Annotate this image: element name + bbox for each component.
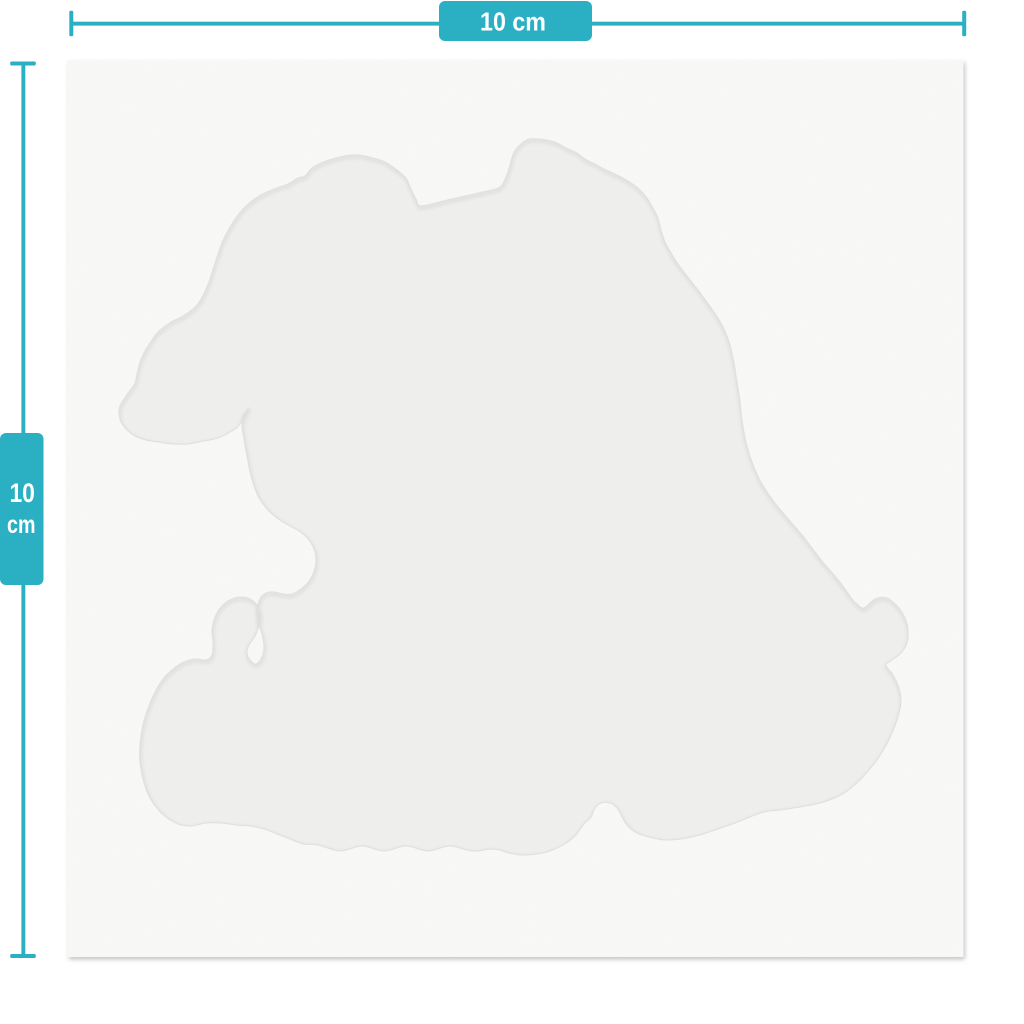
svg-text:10: 10 — [9, 478, 35, 508]
svg-text:10 cm: 10 cm — [480, 7, 546, 37]
svg-text:cm: cm — [7, 511, 36, 539]
